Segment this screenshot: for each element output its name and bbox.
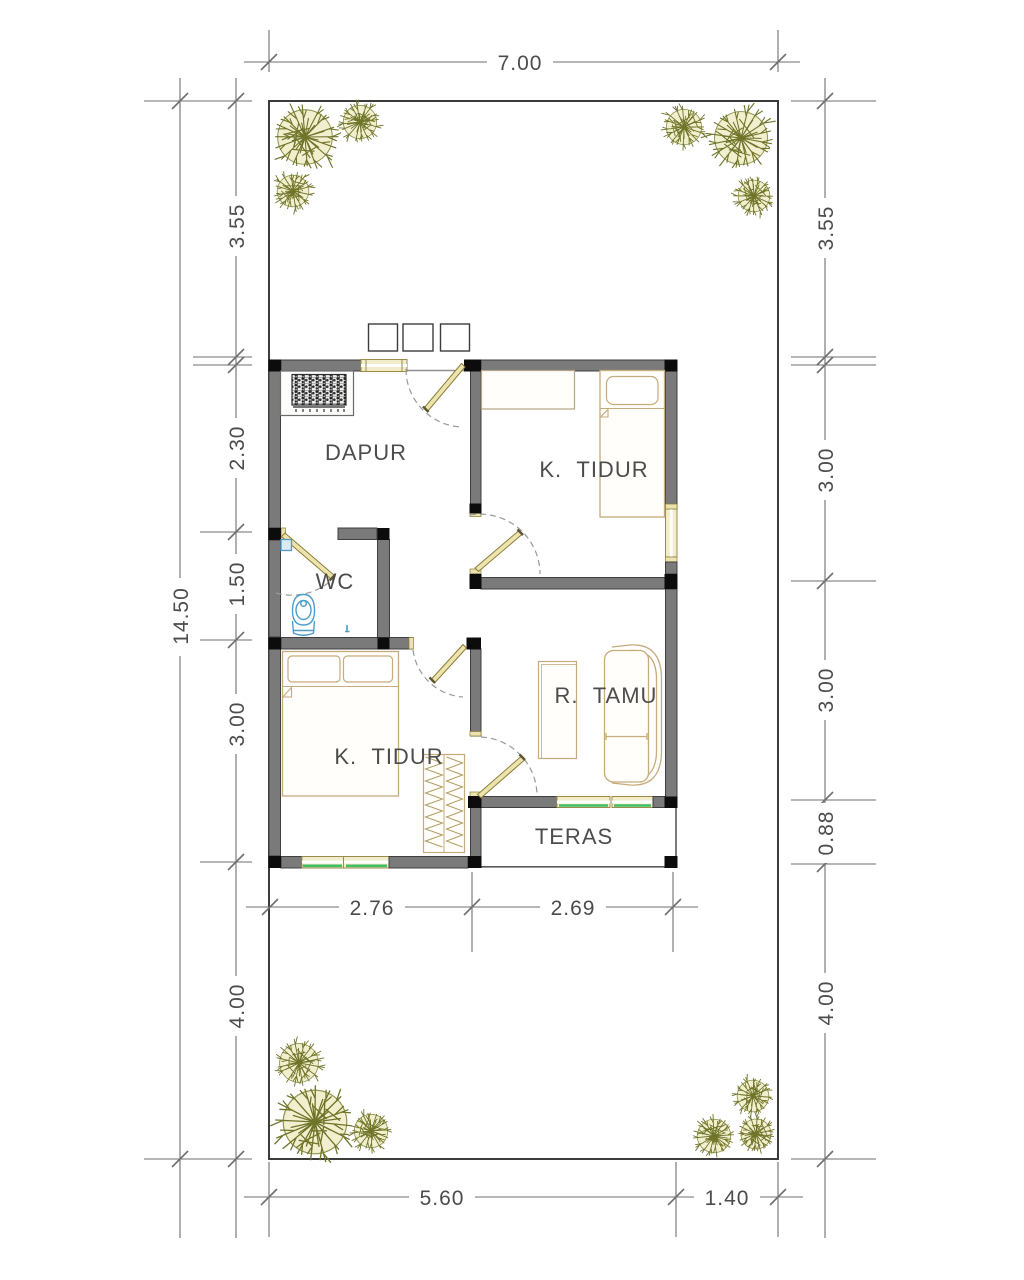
svg-text:3.00: 3.00 xyxy=(815,448,838,493)
svg-text:3.00: 3.00 xyxy=(815,668,838,713)
svg-text:3.55: 3.55 xyxy=(226,204,249,249)
svg-text:K. TIDUR: K. TIDUR xyxy=(539,457,648,482)
svg-text:2.69: 2.69 xyxy=(551,897,596,920)
svg-text:1.40: 1.40 xyxy=(705,1187,750,1210)
svg-text:1.50: 1.50 xyxy=(226,562,249,607)
svg-text:4.00: 4.00 xyxy=(226,984,249,1029)
svg-text:3.00: 3.00 xyxy=(226,702,249,747)
svg-text:K. TIDUR: K. TIDUR xyxy=(334,744,443,769)
svg-text:4.00: 4.00 xyxy=(815,981,838,1026)
svg-text:14.50: 14.50 xyxy=(170,587,193,645)
svg-text:7.00: 7.00 xyxy=(498,52,543,75)
svg-text:5.60: 5.60 xyxy=(420,1187,465,1210)
svg-text:2.76: 2.76 xyxy=(350,897,395,920)
svg-text:DAPUR: DAPUR xyxy=(325,440,407,465)
svg-text:0.88: 0.88 xyxy=(815,811,838,856)
svg-text:2.30: 2.30 xyxy=(226,426,249,471)
svg-text:WC: WC xyxy=(316,569,355,594)
svg-text:TERAS: TERAS xyxy=(535,824,613,849)
svg-text:3.55: 3.55 xyxy=(815,206,838,251)
svg-text:R. TAMU: R. TAMU xyxy=(555,683,658,708)
